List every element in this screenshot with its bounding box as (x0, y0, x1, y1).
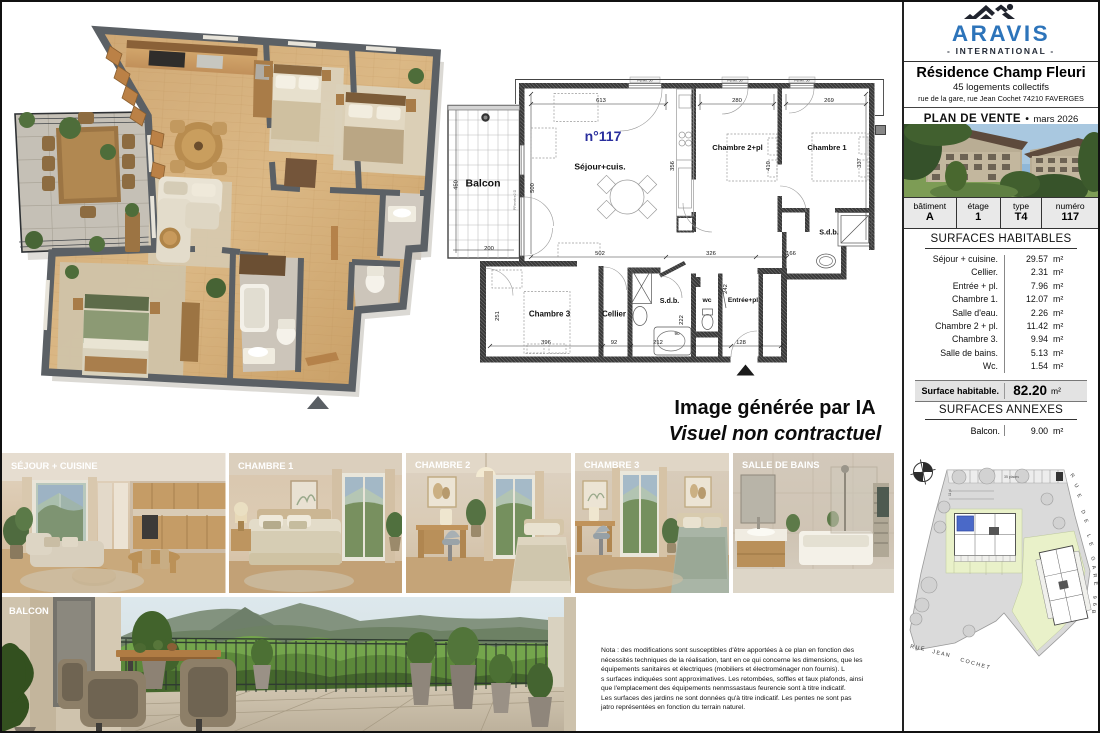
svg-text:U: U (1072, 483, 1079, 490)
svg-text:280: 280 (732, 98, 742, 104)
svg-text:FenM. 50: FenM. 50 (794, 78, 809, 82)
svg-text:410: 410 (766, 161, 772, 171)
svg-text:D: D (1079, 509, 1086, 515)
svg-text:613: 613 (596, 98, 606, 104)
svg-text:CHAMBRE 3: CHAMBRE 3 (584, 460, 639, 470)
svg-text:Chambre 2+pl: Chambre 2+pl (712, 143, 762, 152)
svg-text:wc: wc (701, 297, 711, 304)
svg-text:450: 450 (454, 180, 460, 190)
svg-text:B: B (1090, 610, 1096, 614)
svg-text:CHAMBRE 1: CHAMBRE 1 (238, 461, 293, 471)
svg-text:326: 326 (706, 251, 716, 257)
svg-text:FenM. 50: FenM. 50 (727, 78, 742, 82)
svg-text:FenM. 50: FenM. 50 (637, 78, 652, 82)
svg-text:251: 251 (495, 311, 501, 321)
svg-text:242: 242 (723, 284, 729, 294)
svg-text:Chambre 1: Chambre 1 (807, 143, 847, 152)
svg-text:6: 6 (1091, 603, 1097, 606)
svg-text:n°117: n°117 (585, 128, 622, 144)
svg-text:Cellier: Cellier (602, 310, 626, 319)
svg-text:11 pl: 11 pl (948, 489, 952, 496)
svg-text:BALCON: BALCON (9, 606, 49, 616)
svg-text:200: 200 (484, 246, 494, 252)
svg-text:269: 269 (824, 98, 834, 104)
svg-text:E: E (1087, 542, 1094, 548)
svg-text:SÉJOUR + CUISINE: SÉJOUR + CUISINE (11, 461, 98, 471)
svg-text:Chambre 3: Chambre 3 (529, 310, 571, 319)
svg-text:Séjour+cuis.: Séjour+cuis. (574, 162, 625, 172)
svg-text:356: 356 (670, 161, 676, 171)
svg-text:G: G (1089, 556, 1096, 562)
svg-text:J E A N: J E A N (932, 649, 951, 659)
svg-text:S.d.b.: S.d.b. (819, 228, 839, 237)
svg-text:S.d.b.: S.d.b. (660, 296, 680, 305)
svg-text:337: 337 (857, 158, 863, 168)
svg-text:R: R (1091, 573, 1098, 578)
svg-text:35 places: 35 places (1004, 475, 1019, 479)
svg-text:CHAMBRE 2: CHAMBRE 2 (415, 460, 470, 470)
svg-text:E: E (1092, 581, 1099, 586)
svg-text:PFenetre2 D: PFenetre2 D (513, 189, 517, 210)
svg-text:Entrée+pl: Entrée+pl (728, 297, 758, 304)
svg-text:A: A (1090, 565, 1097, 570)
svg-text:9: 9 (1091, 596, 1097, 600)
svg-text:128: 128 (736, 340, 746, 346)
svg-text:E: E (1075, 493, 1082, 500)
svg-text:R: R (1068, 473, 1075, 480)
svg-text:L: L (1085, 534, 1092, 539)
svg-text:500: 500 (530, 183, 536, 193)
svg-text:222: 222 (679, 315, 685, 325)
svg-text:R U E: R U E (910, 644, 926, 652)
svg-text:E: E (1082, 518, 1089, 524)
svg-text:92: 92 (611, 340, 617, 346)
svg-text:C O C H E T: C O C H E T (959, 657, 990, 671)
svg-text:SALLE DE BAINS: SALLE DE BAINS (742, 460, 819, 470)
svg-text:Balcon: Balcon (465, 178, 500, 190)
svg-text:396: 396 (541, 340, 551, 346)
